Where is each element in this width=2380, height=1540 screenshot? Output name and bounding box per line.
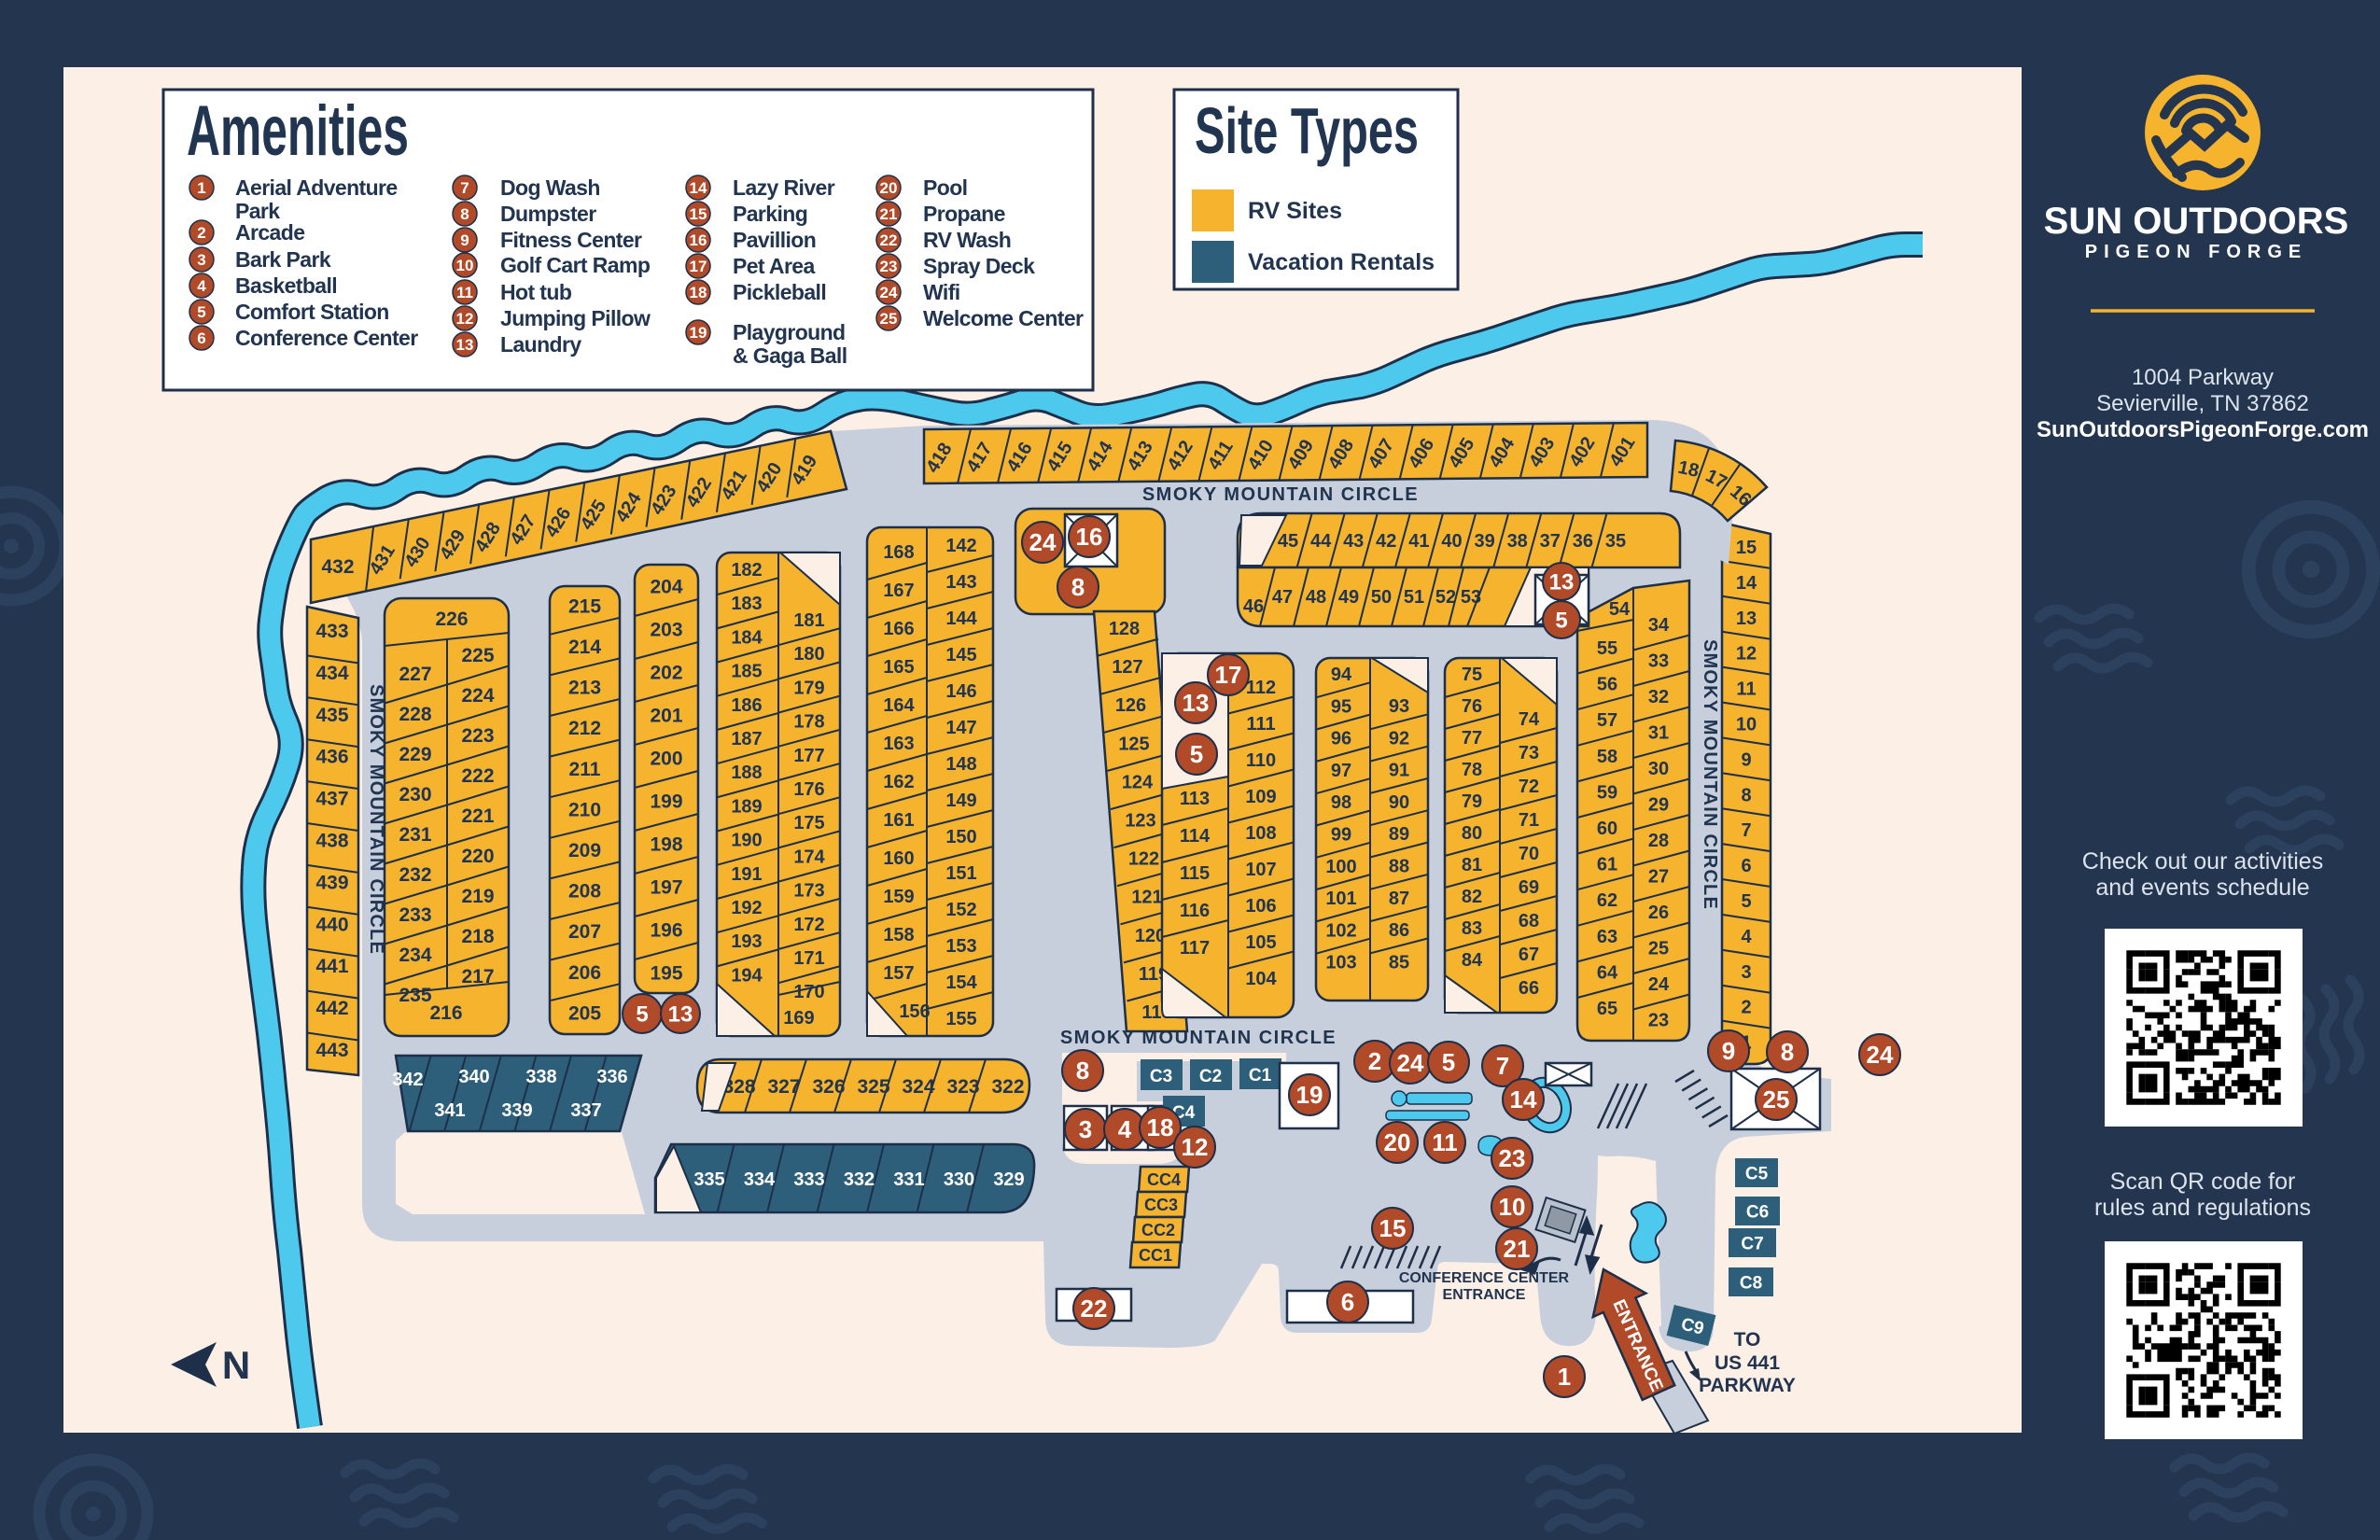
svg-text:189: 189 bbox=[731, 796, 762, 817]
svg-text:327: 327 bbox=[767, 1076, 800, 1098]
svg-text:117: 117 bbox=[1180, 938, 1210, 959]
svg-text:C6: C6 bbox=[1746, 1203, 1769, 1223]
svg-text:37: 37 bbox=[1540, 531, 1561, 552]
svg-text:55: 55 bbox=[1597, 638, 1617, 659]
svg-text:SMOKY MOUNTAIN CIRCLE: SMOKY MOUNTAIN CIRCLE bbox=[1142, 484, 1419, 505]
svg-text:64: 64 bbox=[1597, 962, 1618, 983]
svg-text:323: 323 bbox=[946, 1076, 979, 1098]
svg-text:Hot tub: Hot tub bbox=[500, 280, 572, 304]
svg-text:206: 206 bbox=[568, 962, 601, 984]
svg-text:38: 38 bbox=[1507, 531, 1528, 552]
svg-text:153: 153 bbox=[945, 936, 976, 957]
svg-text:58: 58 bbox=[1597, 747, 1617, 767]
svg-text:& Gaga Ball: & Gaga Ball bbox=[733, 343, 847, 368]
svg-text:36: 36 bbox=[1573, 531, 1593, 552]
svg-text:224: 224 bbox=[461, 685, 494, 707]
svg-text:3: 3 bbox=[1079, 1115, 1092, 1143]
svg-text:231: 231 bbox=[399, 824, 431, 846]
svg-text:9: 9 bbox=[1722, 1037, 1735, 1065]
svg-text:227: 227 bbox=[399, 664, 431, 685]
svg-text:126: 126 bbox=[1115, 695, 1146, 716]
svg-text:Laundry: Laundry bbox=[500, 332, 581, 357]
svg-text:76: 76 bbox=[1462, 696, 1482, 717]
svg-text:13: 13 bbox=[668, 1001, 693, 1027]
svg-text:167: 167 bbox=[883, 581, 914, 601]
svg-text:169: 169 bbox=[783, 1008, 814, 1029]
svg-text:Sevierville, TN 37862: Sevierville, TN 37862 bbox=[2096, 391, 2309, 416]
svg-text:24: 24 bbox=[880, 284, 898, 301]
svg-text:87: 87 bbox=[1389, 889, 1409, 909]
svg-text:C2: C2 bbox=[1199, 1067, 1222, 1086]
svg-text:95: 95 bbox=[1331, 696, 1351, 717]
svg-text:177: 177 bbox=[793, 746, 824, 766]
svg-text:25: 25 bbox=[1763, 1085, 1790, 1113]
svg-text:74: 74 bbox=[1519, 709, 1540, 730]
svg-text:Amenities: Amenities bbox=[187, 91, 409, 171]
svg-text:SMOKY MOUNTAIN CIRCLE: SMOKY MOUNTAIN CIRCLE bbox=[1060, 1028, 1337, 1048]
svg-text:C8: C8 bbox=[1740, 1274, 1762, 1294]
svg-text:24: 24 bbox=[1648, 974, 1670, 995]
svg-text:45: 45 bbox=[1278, 531, 1298, 552]
svg-text:35: 35 bbox=[1605, 531, 1626, 552]
svg-text:195: 195 bbox=[650, 962, 682, 984]
svg-text:215: 215 bbox=[568, 595, 601, 617]
svg-text:149: 149 bbox=[945, 791, 976, 811]
svg-text:209: 209 bbox=[568, 840, 601, 861]
svg-text:71: 71 bbox=[1519, 810, 1539, 831]
svg-text:13: 13 bbox=[456, 336, 474, 354]
svg-text:11: 11 bbox=[456, 284, 473, 301]
svg-text:14: 14 bbox=[690, 179, 707, 197]
svg-text:157: 157 bbox=[883, 963, 914, 984]
svg-text:7: 7 bbox=[460, 179, 469, 197]
svg-text:147: 147 bbox=[945, 718, 976, 738]
svg-text:51: 51 bbox=[1404, 587, 1424, 608]
svg-text:435: 435 bbox=[315, 705, 348, 726]
svg-text:PIGEON FORGE: PIGEON FORGE bbox=[2085, 242, 2307, 262]
svg-text:CC4: CC4 bbox=[1147, 1170, 1181, 1189]
svg-text:1: 1 bbox=[197, 179, 205, 197]
svg-text:123: 123 bbox=[1125, 811, 1155, 832]
svg-text:C1: C1 bbox=[1249, 1066, 1272, 1085]
svg-text:Arcade: Arcade bbox=[235, 220, 304, 245]
svg-text:144: 144 bbox=[945, 609, 977, 629]
svg-text:82: 82 bbox=[1462, 887, 1482, 907]
svg-text:107: 107 bbox=[1245, 860, 1276, 880]
svg-text:19: 19 bbox=[690, 324, 707, 342]
svg-text:10: 10 bbox=[456, 257, 474, 274]
svg-text:92: 92 bbox=[1389, 728, 1409, 749]
svg-text:122: 122 bbox=[1128, 849, 1159, 870]
svg-text:91: 91 bbox=[1389, 761, 1409, 781]
svg-text:15: 15 bbox=[1736, 538, 1757, 558]
svg-text:rules and regulations: rules and regulations bbox=[2094, 1195, 2311, 1221]
svg-text:342: 342 bbox=[392, 1070, 423, 1090]
svg-text:176: 176 bbox=[793, 779, 824, 800]
svg-text:235: 235 bbox=[399, 985, 431, 1006]
svg-text:93: 93 bbox=[1389, 696, 1409, 717]
svg-text:49: 49 bbox=[1338, 587, 1359, 608]
svg-text:23: 23 bbox=[1499, 1144, 1526, 1172]
svg-text:PARKWAY: PARKWAY bbox=[1699, 1375, 1796, 1396]
svg-text:RV Wash: RV Wash bbox=[923, 228, 1011, 252]
svg-text:9: 9 bbox=[460, 231, 469, 249]
svg-text:208: 208 bbox=[568, 881, 601, 903]
svg-text:106: 106 bbox=[1245, 896, 1276, 917]
svg-text:40: 40 bbox=[1441, 531, 1462, 552]
svg-text:8: 8 bbox=[1741, 785, 1751, 805]
svg-text:80: 80 bbox=[1462, 823, 1482, 844]
svg-text:13: 13 bbox=[1183, 689, 1210, 717]
svg-text:156: 156 bbox=[899, 1001, 930, 1022]
svg-text:12: 12 bbox=[1182, 1133, 1209, 1161]
svg-text:168: 168 bbox=[883, 542, 914, 563]
svg-text:RV Sites: RV Sites bbox=[1248, 198, 1342, 224]
svg-text:US 441: US 441 bbox=[1715, 1352, 1780, 1374]
svg-text:193: 193 bbox=[731, 931, 762, 952]
svg-text:197: 197 bbox=[650, 876, 682, 898]
svg-text:214: 214 bbox=[568, 637, 601, 658]
svg-text:94: 94 bbox=[1331, 665, 1352, 685]
svg-text:6: 6 bbox=[1341, 1288, 1354, 1316]
svg-text:97: 97 bbox=[1331, 761, 1351, 781]
svg-text:6: 6 bbox=[1741, 856, 1751, 876]
svg-text:Welcome Center: Welcome Center bbox=[923, 306, 1084, 330]
svg-text:Comfort Station: Comfort Station bbox=[235, 300, 389, 324]
svg-text:5: 5 bbox=[1442, 1048, 1455, 1076]
svg-text:18: 18 bbox=[690, 284, 707, 301]
svg-text:C7: C7 bbox=[1741, 1235, 1763, 1254]
svg-text:21: 21 bbox=[1504, 1235, 1531, 1263]
svg-text:4: 4 bbox=[197, 277, 206, 295]
svg-text:441: 441 bbox=[315, 956, 348, 977]
svg-text:146: 146 bbox=[945, 681, 976, 702]
svg-text:333: 333 bbox=[793, 1169, 824, 1190]
svg-text:6: 6 bbox=[197, 329, 205, 347]
svg-text:79: 79 bbox=[1462, 791, 1482, 812]
svg-text:180: 180 bbox=[793, 644, 824, 665]
svg-text:16: 16 bbox=[1076, 523, 1103, 551]
svg-text:226: 226 bbox=[435, 609, 468, 630]
svg-text:154: 154 bbox=[945, 973, 977, 993]
svg-text:7: 7 bbox=[1496, 1052, 1509, 1080]
svg-text:17: 17 bbox=[690, 258, 707, 275]
svg-text:30: 30 bbox=[1648, 759, 1669, 779]
svg-text:340: 340 bbox=[458, 1067, 489, 1087]
svg-text:14: 14 bbox=[1736, 573, 1757, 594]
svg-text:90: 90 bbox=[1389, 792, 1409, 813]
svg-text:2: 2 bbox=[197, 224, 205, 242]
svg-text:50: 50 bbox=[1371, 587, 1392, 608]
svg-text:213: 213 bbox=[568, 678, 601, 699]
svg-text:163: 163 bbox=[883, 734, 914, 754]
svg-text:211: 211 bbox=[569, 759, 601, 780]
svg-text:116: 116 bbox=[1180, 901, 1210, 921]
svg-text:Bark Park: Bark Park bbox=[235, 247, 331, 272]
svg-text:89: 89 bbox=[1389, 824, 1409, 845]
svg-text:194: 194 bbox=[731, 965, 763, 986]
svg-text:198: 198 bbox=[650, 833, 682, 855]
svg-text:SMOKY MOUNTAIN CIRCLE: SMOKY MOUNTAIN CIRCLE bbox=[1700, 639, 1720, 910]
svg-text:200: 200 bbox=[650, 748, 682, 769]
svg-text:19: 19 bbox=[1296, 1081, 1323, 1109]
svg-text:98: 98 bbox=[1331, 792, 1351, 813]
svg-text:223: 223 bbox=[461, 725, 494, 747]
svg-text:ENTRANCE: ENTRANCE bbox=[1443, 1287, 1526, 1303]
svg-text:16: 16 bbox=[690, 231, 707, 249]
svg-text:5: 5 bbox=[197, 303, 205, 321]
svg-text:186: 186 bbox=[731, 695, 762, 716]
svg-text:66: 66 bbox=[1519, 978, 1539, 999]
svg-text:18: 18 bbox=[1676, 457, 1701, 482]
svg-text:124: 124 bbox=[1122, 772, 1154, 792]
svg-text:188: 188 bbox=[731, 763, 762, 783]
svg-text:73: 73 bbox=[1519, 743, 1539, 763]
svg-text:TO: TO bbox=[1734, 1329, 1761, 1351]
svg-text:2: 2 bbox=[1368, 1047, 1381, 1075]
svg-text:69: 69 bbox=[1519, 877, 1539, 898]
svg-text:4: 4 bbox=[1741, 927, 1752, 947]
svg-text:339: 339 bbox=[501, 1100, 532, 1121]
svg-text:161: 161 bbox=[883, 810, 914, 831]
svg-text:436: 436 bbox=[315, 747, 348, 768]
svg-text:and events schedule: and events schedule bbox=[2095, 875, 2309, 901]
svg-text:81: 81 bbox=[1462, 855, 1482, 875]
svg-text:433: 433 bbox=[315, 621, 348, 642]
svg-text:Propane: Propane bbox=[923, 202, 1005, 226]
svg-text:172: 172 bbox=[793, 915, 824, 935]
svg-text:33: 33 bbox=[1648, 651, 1669, 672]
svg-text:101: 101 bbox=[1325, 889, 1356, 909]
svg-text:324: 324 bbox=[902, 1076, 934, 1098]
svg-text:174: 174 bbox=[793, 847, 825, 867]
svg-text:125: 125 bbox=[1118, 734, 1149, 754]
svg-text:440: 440 bbox=[315, 914, 348, 935]
svg-text:5: 5 bbox=[1555, 608, 1567, 633]
svg-text:63: 63 bbox=[1597, 927, 1617, 947]
svg-text:5: 5 bbox=[1741, 891, 1751, 912]
svg-text:Wifi: Wifi bbox=[923, 280, 960, 304]
svg-text:187: 187 bbox=[731, 729, 762, 749]
svg-text:13: 13 bbox=[1549, 569, 1575, 595]
svg-text:14: 14 bbox=[1510, 1085, 1537, 1113]
svg-text:31: 31 bbox=[1648, 723, 1669, 744]
svg-text:48: 48 bbox=[1306, 587, 1326, 608]
svg-text:332: 332 bbox=[844, 1169, 875, 1190]
svg-text:83: 83 bbox=[1462, 918, 1482, 939]
svg-text:Conference Center: Conference Center bbox=[235, 326, 418, 350]
svg-text:8: 8 bbox=[1781, 1038, 1794, 1066]
svg-text:62: 62 bbox=[1597, 890, 1617, 911]
svg-text:114: 114 bbox=[1180, 826, 1211, 847]
svg-text:439: 439 bbox=[315, 872, 348, 893]
svg-text:12: 12 bbox=[456, 310, 474, 328]
svg-text:15: 15 bbox=[690, 205, 707, 223]
svg-text:47: 47 bbox=[1272, 587, 1293, 608]
svg-text:160: 160 bbox=[883, 848, 914, 869]
svg-text:232: 232 bbox=[399, 864, 431, 886]
svg-text:CC2: CC2 bbox=[1141, 1221, 1175, 1239]
svg-text:28: 28 bbox=[1648, 831, 1669, 851]
svg-text:229: 229 bbox=[399, 744, 431, 765]
svg-text:32: 32 bbox=[1648, 687, 1669, 707]
svg-text:196: 196 bbox=[650, 919, 682, 941]
svg-text:181: 181 bbox=[793, 610, 824, 631]
svg-text:199: 199 bbox=[650, 791, 682, 812]
svg-text:46: 46 bbox=[1243, 596, 1264, 617]
svg-text:Basketball: Basketball bbox=[235, 273, 337, 298]
svg-text:10: 10 bbox=[1736, 715, 1757, 735]
svg-text:127: 127 bbox=[1112, 657, 1142, 678]
svg-text:4: 4 bbox=[1118, 1115, 1132, 1143]
svg-text:44: 44 bbox=[1310, 531, 1332, 552]
svg-text:86: 86 bbox=[1389, 920, 1409, 941]
svg-text:88: 88 bbox=[1389, 857, 1409, 877]
svg-text:183: 183 bbox=[731, 594, 762, 614]
svg-text:443: 443 bbox=[315, 1040, 348, 1061]
svg-text:234: 234 bbox=[399, 945, 431, 966]
svg-text:191: 191 bbox=[731, 864, 762, 885]
svg-text:148: 148 bbox=[945, 754, 976, 775]
svg-text:178: 178 bbox=[793, 712, 824, 733]
svg-text:164: 164 bbox=[883, 695, 915, 716]
svg-text:5: 5 bbox=[636, 1001, 648, 1027]
svg-text:20: 20 bbox=[880, 179, 898, 197]
svg-text:60: 60 bbox=[1597, 819, 1617, 839]
svg-text:111: 111 bbox=[1246, 714, 1275, 735]
svg-text:185: 185 bbox=[731, 662, 762, 682]
svg-text:329: 329 bbox=[993, 1169, 1024, 1190]
svg-text:432: 432 bbox=[321, 556, 354, 578]
svg-text:Pool: Pool bbox=[923, 175, 967, 200]
svg-text:68: 68 bbox=[1519, 911, 1539, 931]
svg-text:438: 438 bbox=[315, 831, 348, 852]
svg-text:27: 27 bbox=[1648, 867, 1669, 888]
svg-text:322: 322 bbox=[991, 1076, 1024, 1098]
svg-text:Jumping Pillow: Jumping Pillow bbox=[500, 306, 651, 330]
svg-text:9: 9 bbox=[1741, 749, 1751, 770]
svg-text:39: 39 bbox=[1474, 531, 1494, 552]
svg-text:23: 23 bbox=[880, 258, 898, 275]
svg-text:34: 34 bbox=[1648, 615, 1670, 636]
svg-text:Check out our activities: Check out our activities bbox=[2082, 848, 2323, 875]
svg-text:201: 201 bbox=[650, 705, 682, 726]
svg-text:150: 150 bbox=[945, 827, 976, 847]
svg-text:155: 155 bbox=[945, 1009, 976, 1029]
svg-text:SunOutdoorsPigeonForge.com: SunOutdoorsPigeonForge.com bbox=[2037, 417, 2369, 442]
svg-text:338: 338 bbox=[525, 1067, 556, 1087]
svg-text:225: 225 bbox=[461, 645, 494, 666]
svg-text:158: 158 bbox=[883, 925, 914, 945]
svg-text:335: 335 bbox=[693, 1169, 724, 1190]
svg-text:77: 77 bbox=[1462, 728, 1482, 749]
svg-text:CONFERENCE CENTER: CONFERENCE CENTER bbox=[1399, 1270, 1570, 1286]
svg-text:Fitness Center: Fitness Center bbox=[500, 228, 642, 252]
svg-text:121: 121 bbox=[1131, 888, 1162, 908]
svg-text:Vacation Rentals: Vacation Rentals bbox=[1248, 249, 1435, 275]
svg-text:Playground: Playground bbox=[733, 320, 846, 344]
svg-text:61: 61 bbox=[1597, 855, 1617, 875]
svg-text:233: 233 bbox=[399, 904, 431, 926]
svg-text:162: 162 bbox=[883, 772, 914, 792]
svg-text:192: 192 bbox=[731, 898, 762, 918]
svg-text:70: 70 bbox=[1519, 844, 1539, 864]
svg-text:173: 173 bbox=[793, 881, 824, 902]
svg-text:334: 334 bbox=[744, 1169, 776, 1190]
svg-text:228: 228 bbox=[399, 704, 431, 725]
svg-text:182: 182 bbox=[731, 560, 762, 581]
svg-text:N: N bbox=[222, 1343, 250, 1387]
svg-text:C5: C5 bbox=[1745, 1165, 1769, 1184]
svg-text:29: 29 bbox=[1648, 795, 1669, 816]
svg-text:100: 100 bbox=[1325, 857, 1356, 877]
svg-text:207: 207 bbox=[568, 921, 601, 943]
svg-text:330: 330 bbox=[944, 1169, 974, 1190]
svg-text:54: 54 bbox=[1609, 599, 1631, 620]
svg-text:204: 204 bbox=[650, 576, 682, 597]
svg-text:Pavillion: Pavillion bbox=[733, 228, 816, 252]
svg-text:99: 99 bbox=[1331, 825, 1351, 846]
svg-text:10: 10 bbox=[1499, 1193, 1526, 1221]
svg-text:165: 165 bbox=[883, 657, 914, 678]
svg-text:72: 72 bbox=[1519, 777, 1539, 797]
svg-text:Pickleball: Pickleball bbox=[733, 280, 826, 304]
svg-text:179: 179 bbox=[793, 678, 824, 698]
svg-text:24: 24 bbox=[1397, 1049, 1424, 1077]
svg-text:Dumpster: Dumpster bbox=[500, 202, 596, 226]
svg-text:96: 96 bbox=[1331, 729, 1351, 749]
svg-text:65: 65 bbox=[1597, 999, 1617, 1019]
svg-text:166: 166 bbox=[883, 619, 914, 639]
svg-text:184: 184 bbox=[731, 627, 763, 648]
svg-text:57: 57 bbox=[1597, 710, 1617, 731]
svg-text:115: 115 bbox=[1180, 863, 1210, 884]
svg-text:24: 24 bbox=[1867, 1041, 1894, 1069]
svg-text:84: 84 bbox=[1462, 950, 1483, 971]
svg-text:222: 222 bbox=[461, 765, 494, 787]
svg-text:171: 171 bbox=[793, 948, 824, 969]
svg-text:205: 205 bbox=[568, 1002, 601, 1024]
svg-text:145: 145 bbox=[945, 645, 976, 665]
svg-text:25: 25 bbox=[880, 310, 898, 328]
svg-text:7: 7 bbox=[1741, 820, 1751, 841]
svg-text:203: 203 bbox=[650, 619, 682, 640]
svg-text:326: 326 bbox=[812, 1076, 845, 1098]
svg-text:59: 59 bbox=[1597, 782, 1617, 803]
svg-text:1004 Parkway: 1004 Parkway bbox=[2132, 365, 2274, 390]
svg-text:337: 337 bbox=[570, 1100, 601, 1121]
svg-text:22: 22 bbox=[1081, 1295, 1108, 1323]
svg-text:102: 102 bbox=[1325, 920, 1356, 941]
svg-text:434: 434 bbox=[315, 663, 348, 684]
svg-text:15: 15 bbox=[1379, 1214, 1407, 1242]
svg-text:11: 11 bbox=[1736, 679, 1756, 700]
svg-text:230: 230 bbox=[399, 784, 431, 805]
svg-text:218: 218 bbox=[461, 926, 494, 947]
svg-text:216: 216 bbox=[429, 1002, 462, 1024]
svg-text:CC3: CC3 bbox=[1144, 1196, 1178, 1214]
svg-text:437: 437 bbox=[315, 789, 348, 810]
svg-text:75: 75 bbox=[1462, 665, 1482, 685]
svg-text:8: 8 bbox=[460, 205, 469, 223]
svg-text:Parking: Parking bbox=[733, 202, 807, 226]
svg-text:8: 8 bbox=[1071, 573, 1085, 601]
svg-text:190: 190 bbox=[731, 831, 762, 851]
svg-text:220: 220 bbox=[461, 846, 494, 867]
svg-text:41: 41 bbox=[1408, 531, 1429, 552]
svg-text:CC1: CC1 bbox=[1139, 1246, 1172, 1265]
svg-text:11: 11 bbox=[1432, 1128, 1458, 1156]
